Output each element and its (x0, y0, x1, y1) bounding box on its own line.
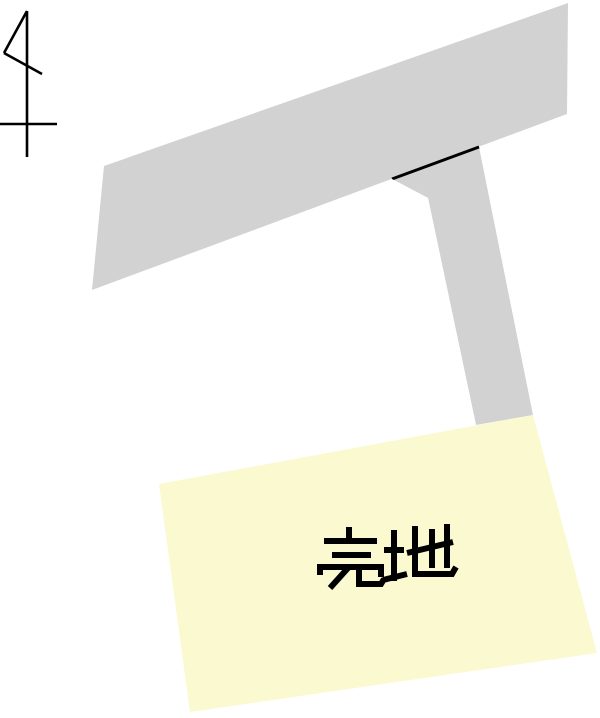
north-arrow-flag-left (4, 11, 27, 53)
north-arrow-icon (0, 11, 57, 157)
plot-map-canvas (0, 0, 600, 718)
plot-map: 売地 (0, 0, 600, 718)
north-arrow-flag-bottom (4, 53, 42, 74)
sale-lot-label: 売地 (316, 514, 466, 594)
